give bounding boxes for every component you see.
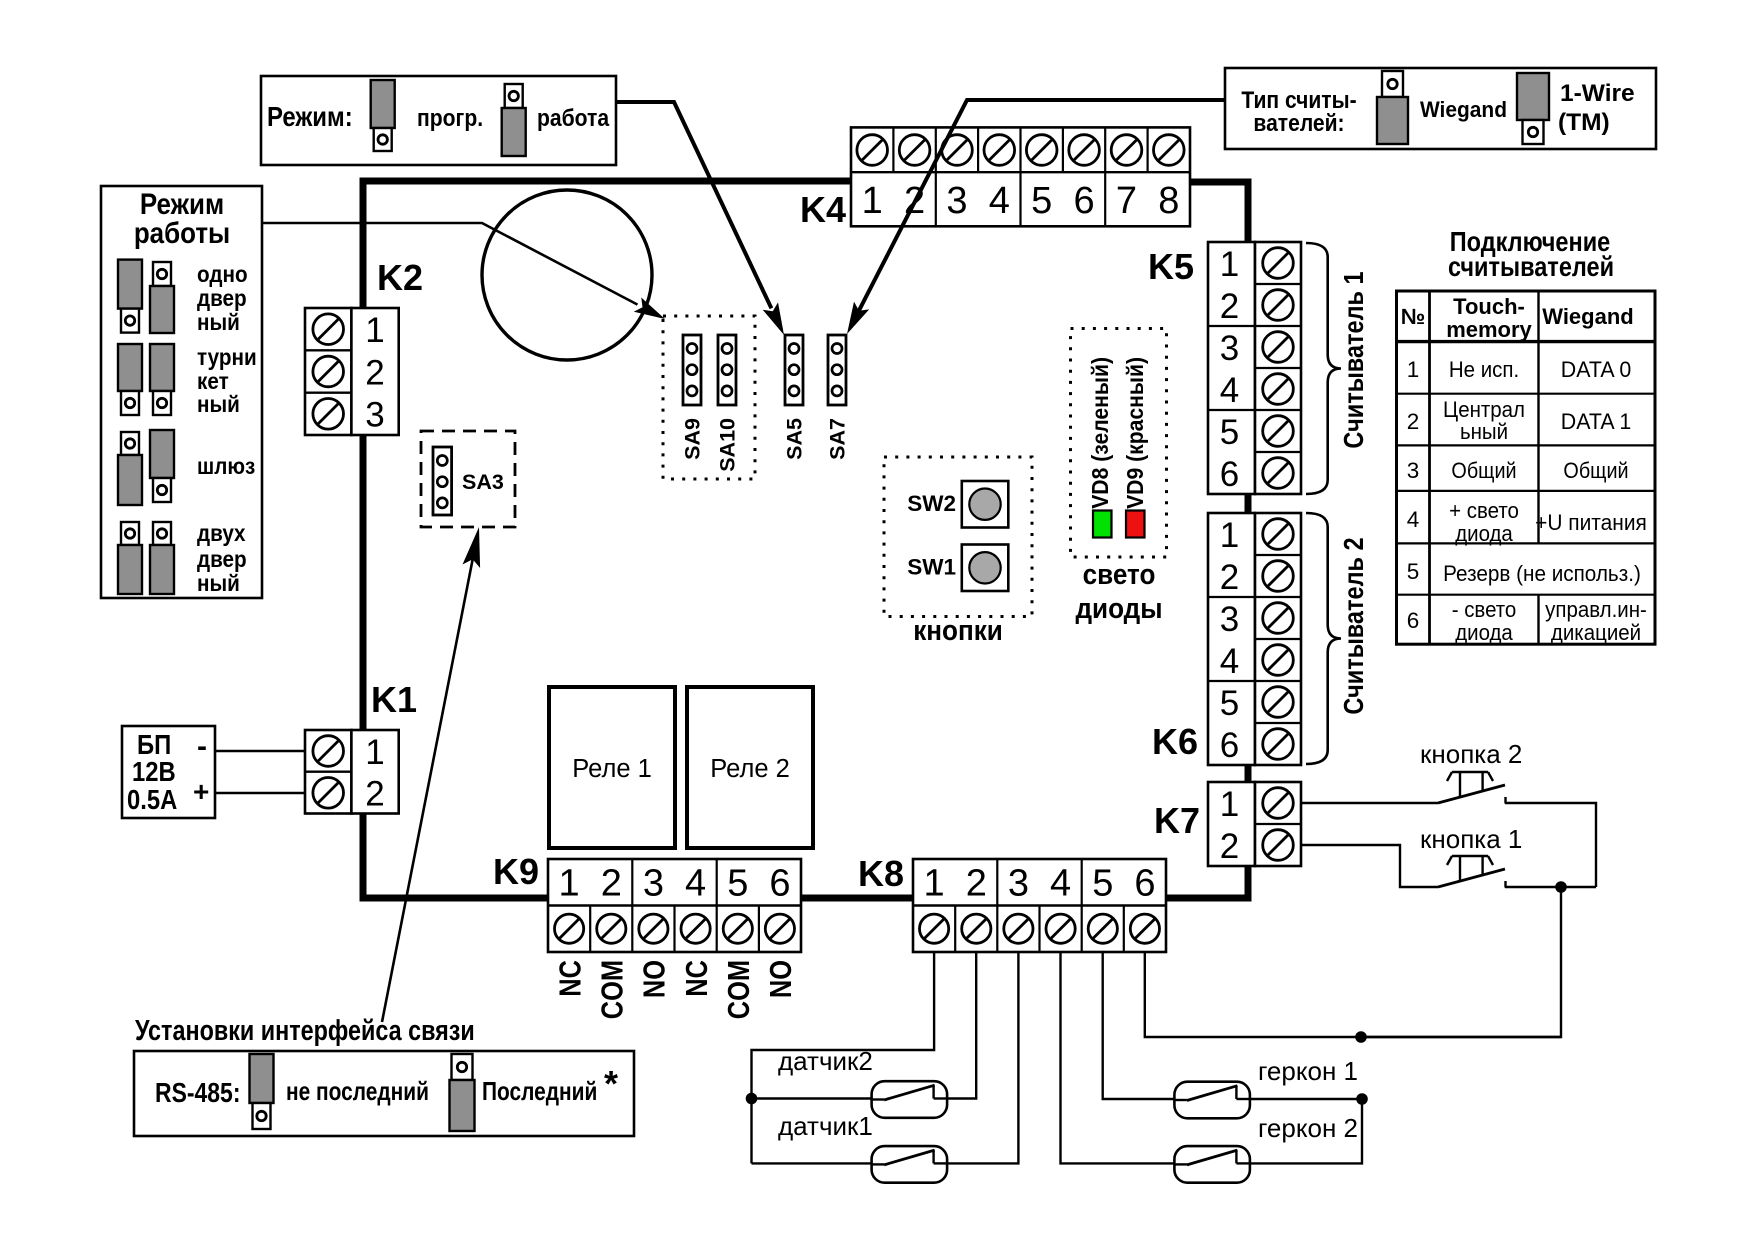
svg-text:1: 1	[1220, 516, 1239, 555]
svg-text:0.5А: 0.5А	[127, 783, 177, 815]
svg-text:Резерв (не использ.): Резерв (не использ.)	[1443, 560, 1641, 586]
svg-text:RS-485:: RS-485:	[155, 1078, 240, 1109]
svg-text:геркон 1: геркон 1	[1258, 1056, 1358, 1086]
svg-text:Wiegand: Wiegand	[1420, 96, 1507, 122]
svg-text:геркон 2: геркон 2	[1258, 1113, 1358, 1143]
svg-text:K2: K2	[377, 257, 423, 298]
svg-text:SA7: SA7	[826, 418, 850, 460]
svg-text:датчик1: датчик1	[778, 1111, 873, 1141]
svg-text:+U питания: +U питания	[1535, 509, 1647, 535]
svg-text:Установки интерфейса связи: Установки интерфейса связи	[135, 1014, 475, 1047]
svg-text:NC: NC	[680, 960, 715, 997]
svg-text:4: 4	[989, 180, 1010, 222]
svg-text:Режим:: Режим:	[267, 103, 353, 133]
svg-text:4: 4	[1220, 642, 1239, 681]
svg-text:3: 3	[365, 396, 384, 435]
svg-text:8: 8	[1158, 180, 1179, 222]
svg-text:+ свето: + свето	[1449, 498, 1519, 523]
svg-text:кнопка 1: кнопка 1	[1420, 824, 1522, 854]
svg-text:Не исп.: Не исп.	[1449, 357, 1519, 382]
svg-text:2: 2	[1407, 409, 1420, 434]
svg-text:SA3: SA3	[462, 470, 504, 494]
svg-text:DATA 0: DATA 0	[1561, 356, 1631, 382]
svg-text:прогр.: прогр.	[417, 105, 483, 132]
svg-text:1: 1	[1220, 245, 1239, 284]
svg-text:2: 2	[1220, 827, 1239, 866]
svg-text:диода: диода	[1455, 620, 1513, 645]
svg-text:кнопка 2: кнопка 2	[1420, 739, 1522, 769]
svg-text:1: 1	[862, 180, 883, 222]
svg-text:SW1: SW1	[907, 555, 956, 580]
svg-text:датчик2: датчик2	[778, 1046, 873, 1076]
svg-text:турни: турни	[197, 344, 257, 371]
svg-text:K8: K8	[858, 853, 904, 894]
svg-text:K4: K4	[800, 189, 846, 230]
svg-text:2: 2	[601, 863, 622, 905]
svg-text:3: 3	[946, 180, 967, 222]
svg-text:5: 5	[1092, 863, 1113, 905]
svg-text:COM: COM	[722, 960, 757, 1019]
svg-text:SW2: SW2	[907, 491, 956, 516]
svg-text:свето: свето	[1083, 558, 1156, 591]
svg-text:K5: K5	[1148, 246, 1194, 287]
svg-text:6: 6	[1220, 726, 1239, 765]
svg-text:5: 5	[1407, 559, 1420, 584]
svg-text:5: 5	[727, 863, 748, 905]
svg-text:вателей:: вателей:	[1253, 108, 1344, 136]
svg-text:1: 1	[365, 311, 384, 350]
svg-text:4: 4	[685, 863, 706, 905]
svg-text:работы: работы	[134, 216, 230, 249]
svg-text:Wiegand: Wiegand	[1542, 304, 1633, 329]
svg-text:2: 2	[1220, 287, 1239, 326]
svg-text:SA9: SA9	[681, 418, 705, 460]
svg-text:3: 3	[1220, 600, 1239, 639]
svg-text:2: 2	[365, 775, 384, 814]
svg-text:ный: ный	[197, 391, 240, 418]
svg-text:ный: ный	[197, 570, 240, 597]
svg-text:1: 1	[1220, 785, 1239, 824]
svg-text:(ТМ): (ТМ)	[1558, 109, 1610, 136]
svg-text:Считыватель 2: Считыватель 2	[1339, 537, 1369, 714]
svg-text:двух: двух	[197, 520, 246, 547]
svg-text:1: 1	[1407, 357, 1420, 382]
svg-text:K6: K6	[1152, 721, 1198, 762]
svg-text:двер: двер	[197, 546, 247, 573]
svg-text:ный: ный	[197, 309, 240, 336]
svg-text:2: 2	[1220, 558, 1239, 597]
svg-text:дикацией: дикацией	[1551, 620, 1641, 645]
svg-text:K7: K7	[1154, 800, 1200, 841]
svg-text:1: 1	[924, 863, 945, 905]
svg-text:6: 6	[1220, 455, 1239, 494]
svg-text:NO: NO	[637, 960, 672, 998]
svg-text:VD8 (зеленый): VD8 (зеленый)	[1087, 357, 1113, 509]
svg-text:5: 5	[1220, 684, 1239, 723]
svg-text:1-Wire: 1-Wire	[1560, 80, 1635, 107]
svg-text:4: 4	[1220, 371, 1239, 410]
svg-text:6: 6	[1074, 180, 1095, 222]
svg-text:шлюз: шлюз	[197, 453, 255, 480]
svg-text:SA10: SA10	[716, 418, 740, 472]
svg-text:3: 3	[1407, 458, 1420, 483]
svg-text:5: 5	[1031, 180, 1052, 222]
svg-text:одно: одно	[197, 261, 248, 288]
svg-text:memory: memory	[1446, 317, 1532, 342]
svg-text:5: 5	[1220, 413, 1239, 452]
svg-text:SA5: SA5	[783, 418, 807, 460]
svg-text:диода: диода	[1455, 521, 1513, 546]
svg-text:диоды: диоды	[1075, 592, 1162, 625]
svg-text:K9: K9	[493, 851, 539, 892]
svg-text:ьный: ьный	[1460, 419, 1508, 444]
svg-text:Последний: Последний	[482, 1077, 597, 1105]
svg-text:VD9 (красный): VD9 (красный)	[1122, 357, 1148, 509]
svg-text:Режим: Режим	[140, 187, 224, 220]
svg-text:*: *	[604, 1063, 618, 1104]
svg-text:2: 2	[966, 863, 987, 905]
svg-text:считывателей: считывателей	[1448, 252, 1614, 282]
svg-text:Touch-: Touch-	[1453, 294, 1525, 319]
svg-text:+: +	[193, 776, 209, 807]
svg-text:6: 6	[1134, 863, 1155, 905]
svg-text:2: 2	[365, 353, 384, 392]
svg-text:COM: COM	[595, 960, 630, 1019]
svg-text:4: 4	[1407, 507, 1420, 532]
svg-text:3: 3	[1008, 863, 1029, 905]
svg-text:двер: двер	[197, 285, 247, 312]
svg-text:кнопки: кнопки	[913, 614, 1003, 647]
svg-text:6: 6	[1407, 608, 1420, 633]
svg-text:7: 7	[1116, 180, 1137, 222]
svg-text:- свето: - свето	[1452, 597, 1517, 622]
svg-text:4: 4	[1050, 863, 1071, 905]
svg-text:работа: работа	[537, 105, 610, 132]
svg-text:DATA 1: DATA 1	[1561, 408, 1631, 434]
svg-text:Общий: Общий	[1451, 459, 1516, 483]
svg-text:1: 1	[559, 863, 580, 905]
svg-text:NO: NO	[764, 960, 799, 998]
svg-text:не последний: не последний	[286, 1077, 429, 1105]
svg-text:K1: K1	[371, 679, 417, 720]
svg-text:3: 3	[643, 863, 664, 905]
svg-text:Реле 2: Реле 2	[710, 755, 790, 783]
svg-text:NC: NC	[553, 960, 588, 997]
svg-text:Реле 1: Реле 1	[572, 755, 652, 783]
svg-text:Считыватель 1: Считыватель 1	[1339, 271, 1369, 448]
svg-text:№: №	[1401, 304, 1426, 329]
svg-text:6: 6	[769, 863, 790, 905]
svg-text:управл.ин-: управл.ин-	[1545, 597, 1647, 622]
svg-text:Общий: Общий	[1563, 459, 1628, 483]
svg-text:1: 1	[365, 733, 384, 772]
svg-text:3: 3	[1220, 329, 1239, 368]
svg-text:-: -	[197, 730, 207, 763]
